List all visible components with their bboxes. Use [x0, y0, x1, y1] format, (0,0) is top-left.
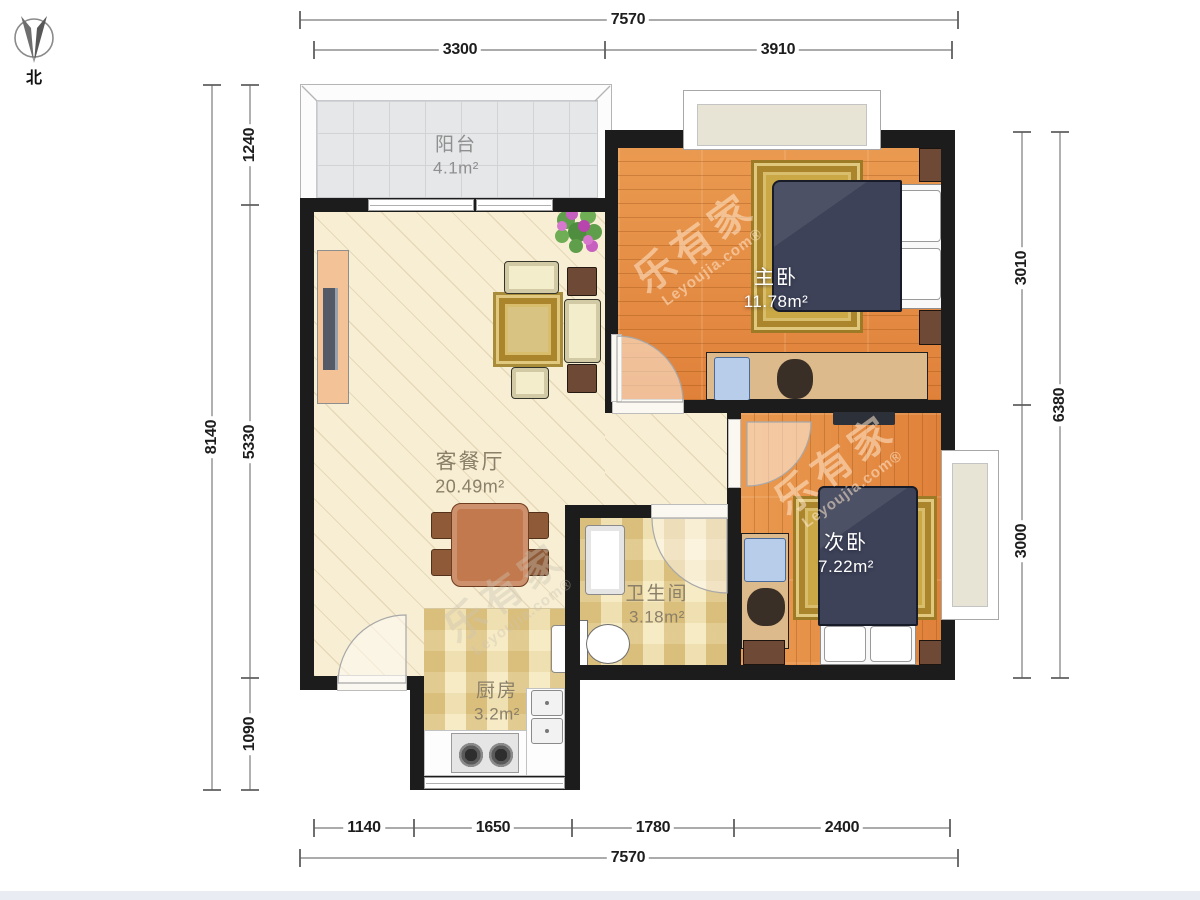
- kitchen-sink: [531, 690, 563, 716]
- room-label-bathroom: 卫生间 3.18m²: [625, 583, 688, 628]
- floor-plan: 阳台 4.1m² 主卧 11.78m² 客餐厅 20.49m² 次卧 7.22m…: [0, 0, 1200, 900]
- room-area: 4.1m²: [433, 157, 479, 178]
- dim-top-total: 7570: [607, 11, 649, 29]
- dim-right-total: 6380: [1051, 384, 1069, 426]
- second-bedroom-door: [728, 419, 741, 488]
- kitchen-sink: [531, 718, 563, 744]
- room-area: 11.78m²: [744, 291, 809, 312]
- bathroom-door: [651, 504, 728, 519]
- room-label-balcony: 阳台 4.1m²: [433, 134, 479, 179]
- room-name: 主卧: [744, 266, 809, 291]
- second-bay-window-glass: [952, 463, 988, 607]
- loveseat-sofa: [504, 261, 559, 294]
- room-name: 客餐厅: [435, 450, 505, 476]
- room-name: 阳台: [433, 134, 479, 158]
- master-door: [612, 399, 684, 414]
- armchair: [511, 367, 549, 399]
- balcony-window: [368, 199, 474, 211]
- dim-top-seg: 3910: [757, 41, 799, 59]
- room-label-master: 主卧 11.78m²: [744, 266, 809, 312]
- burner-icon: [488, 742, 514, 768]
- room-area: 3.2m²: [474, 703, 520, 724]
- dim-bottom-seg: 2400: [821, 819, 863, 837]
- compass-icon: [15, 16, 53, 63]
- tv: [323, 288, 335, 370]
- balcony-window: [476, 199, 553, 211]
- wall: [565, 665, 955, 680]
- master-bay-window-glass: [697, 104, 867, 146]
- dim-top-seg: 3300: [439, 41, 481, 59]
- room-area: 3.18m²: [625, 606, 688, 627]
- dim-bottom-seg: 1140: [343, 819, 385, 837]
- entrance-door: [337, 675, 407, 691]
- master-door-leaf: [611, 334, 622, 402]
- dim-right-seg: 3000: [1013, 520, 1031, 562]
- nightstand: [743, 640, 785, 665]
- desk-chair-blue: [744, 538, 786, 582]
- wall: [565, 505, 580, 790]
- pillow: [824, 626, 866, 662]
- desk-chair-blue: [714, 357, 750, 401]
- dim-left-seg: 5330: [241, 421, 259, 463]
- desk-chair-dark: [777, 359, 813, 399]
- room-area: 7.22m²: [818, 556, 874, 577]
- dim-bottom-total: 7570: [607, 849, 649, 867]
- burner-icon: [458, 742, 484, 768]
- kitchen-window: [424, 777, 565, 789]
- room-name: 厨房: [474, 680, 520, 704]
- dim-left-seg: 1240: [241, 124, 259, 166]
- dim-bottom-seg: 1780: [632, 819, 674, 837]
- room-name: 次卧: [818, 531, 874, 556]
- side-table: [567, 364, 597, 393]
- desk-chair-dark: [747, 588, 785, 626]
- corridor-floor: [605, 413, 741, 510]
- wall: [410, 676, 424, 790]
- wall: [300, 198, 314, 690]
- dim-left-seg: 1090: [241, 713, 259, 755]
- north-label: 北: [26, 64, 42, 88]
- bathroom-sink: [585, 525, 625, 595]
- bottom-band: [0, 891, 1200, 900]
- side-table: [567, 267, 597, 296]
- air-conditioner: [833, 412, 895, 425]
- room-label-kitchen: 厨房 3.2m²: [474, 680, 520, 725]
- room-area: 20.49m²: [435, 476, 505, 499]
- sofa: [564, 299, 601, 363]
- living-room-floor: [314, 212, 605, 676]
- wall: [941, 130, 955, 455]
- dim-bottom-seg: 1650: [472, 819, 514, 837]
- dining-table: [451, 503, 529, 587]
- room-name: 卫生间: [625, 583, 688, 607]
- room-label-second: 次卧 7.22m²: [818, 531, 874, 577]
- dim-right-seg: 3010: [1013, 247, 1031, 289]
- living-rug: [493, 292, 563, 367]
- dim-left-total: 8140: [203, 416, 221, 458]
- room-label-living: 客餐厅 20.49m²: [435, 450, 505, 499]
- toilet-bowl: [586, 624, 630, 664]
- pillow: [870, 626, 912, 662]
